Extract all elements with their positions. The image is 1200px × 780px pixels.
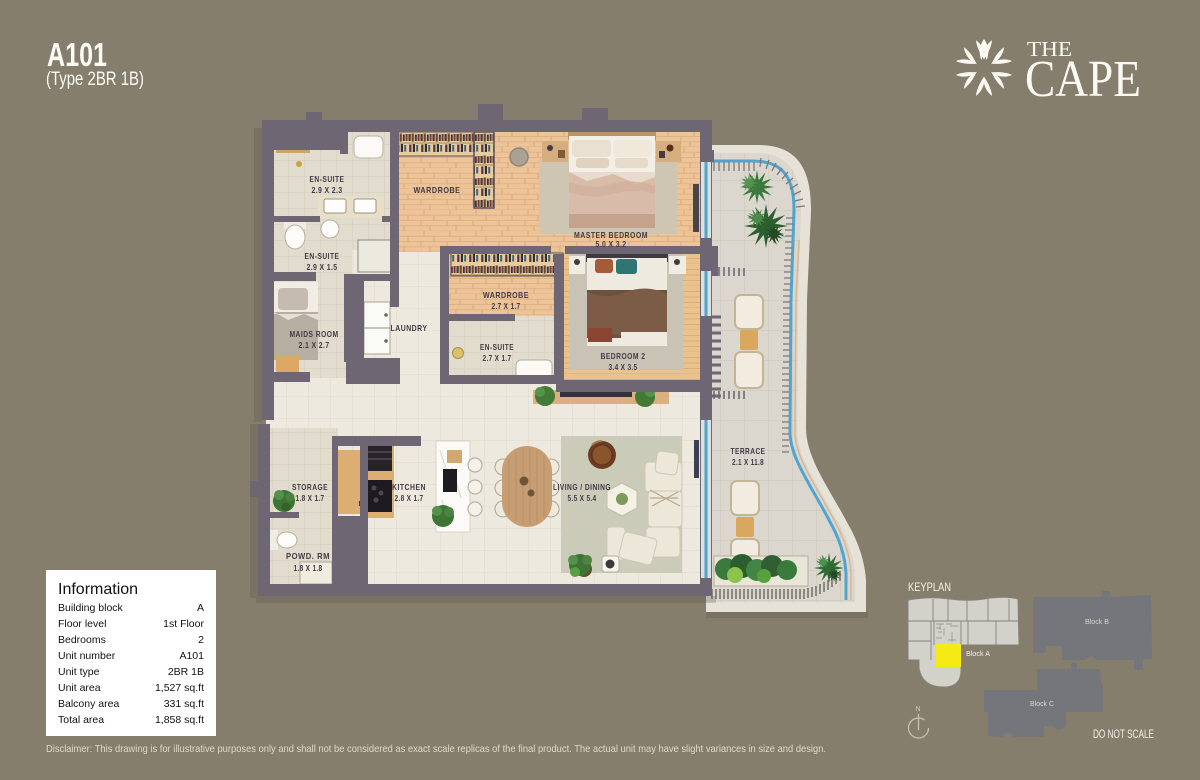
- svg-text:2.9 X 1.5: 2.9 X 1.5: [307, 263, 338, 272]
- svg-text:Unit area: Unit area: [58, 682, 101, 694]
- svg-text:1,527 sq.ft: 1,527 sq.ft: [155, 682, 204, 694]
- svg-text:1.8 X 1.7: 1.8 X 1.7: [296, 494, 325, 503]
- svg-text:2.1 X 11.8: 2.1 X 11.8: [732, 458, 764, 467]
- svg-text:Information: Information: [58, 581, 138, 598]
- svg-text:1.8 X 1.8: 1.8 X 1.8: [294, 564, 323, 573]
- svg-text:1,858 sq.ft: 1,858 sq.ft: [155, 714, 204, 726]
- svg-text:BEDROOM 2: BEDROOM 2: [601, 351, 646, 361]
- svg-text:5.0 X 3.2: 5.0 X 3.2: [596, 240, 627, 249]
- svg-text:5.5 X 5.4: 5.5 X 5.4: [568, 494, 597, 503]
- svg-text:Building block: Building block: [58, 602, 124, 614]
- svg-text:MAIDS ROOM: MAIDS ROOM: [290, 329, 339, 339]
- svg-text:POWD. RM: POWD. RM: [286, 551, 330, 561]
- svg-text:2.9 X 2.3: 2.9 X 2.3: [312, 186, 343, 195]
- svg-text:WARDROBE: WARDROBE: [483, 290, 529, 300]
- svg-text:Block C: Block C: [1030, 699, 1055, 708]
- svg-text:Block A: Block A: [966, 649, 990, 658]
- svg-text:Block B: Block B: [1085, 617, 1109, 626]
- svg-text:Floor level: Floor level: [58, 618, 106, 630]
- svg-text:EN-SUITE: EN-SUITE: [480, 342, 514, 352]
- svg-text:2.7 X 1.7: 2.7 X 1.7: [492, 302, 521, 311]
- svg-text:Total area: Total area: [58, 714, 104, 726]
- svg-text:Disclaimer: This drawing is fo: Disclaimer: This drawing is for illustra…: [46, 744, 826, 755]
- svg-text:WARDROBE: WARDROBE: [414, 185, 461, 195]
- svg-text:LAUNDRY: LAUNDRY: [391, 323, 428, 333]
- svg-text:STORAGE: STORAGE: [292, 482, 328, 492]
- svg-text:331 sq.ft: 331 sq.ft: [164, 698, 204, 710]
- svg-text:N: N: [916, 706, 921, 713]
- svg-text:Unit type: Unit type: [58, 666, 100, 678]
- svg-text:(Type 2BR 1B): (Type 2BR 1B): [46, 69, 144, 90]
- svg-text:2.1 X 2.7: 2.1 X 2.7: [299, 341, 330, 350]
- svg-text:Balcony area: Balcony area: [58, 698, 119, 710]
- svg-text:KEYPLAN: KEYPLAN: [908, 582, 951, 594]
- svg-text:A101: A101: [179, 650, 204, 662]
- svg-text:Unit number: Unit number: [58, 650, 116, 662]
- svg-text:A101: A101: [47, 36, 107, 73]
- svg-text:EN-SUITE: EN-SUITE: [305, 251, 340, 261]
- svg-text:2.7 X 1.7: 2.7 X 1.7: [483, 354, 512, 363]
- svg-text:EN-SUITE: EN-SUITE: [310, 174, 345, 184]
- svg-text:DO NOT SCALE: DO NOT SCALE: [1093, 729, 1154, 741]
- svg-text:2BR 1B: 2BR 1B: [168, 666, 204, 678]
- svg-text:1st Floor: 1st Floor: [163, 618, 204, 630]
- svg-text:KITCHEN: KITCHEN: [392, 482, 426, 492]
- svg-text:LIVING / DINING: LIVING / DINING: [553, 482, 611, 492]
- svg-text:A: A: [197, 602, 204, 614]
- svg-text:3.4 X 3.5: 3.4 X 3.5: [609, 363, 638, 372]
- svg-text:2: 2: [198, 634, 204, 646]
- svg-text:2.8 X 1.7: 2.8 X 1.7: [395, 494, 424, 503]
- svg-text:Bedrooms: Bedrooms: [58, 634, 106, 646]
- svg-text:MASTER BEDROOM: MASTER BEDROOM: [574, 230, 648, 240]
- svg-text:CAPE: CAPE: [1025, 51, 1141, 108]
- svg-text:TERRACE: TERRACE: [731, 446, 766, 456]
